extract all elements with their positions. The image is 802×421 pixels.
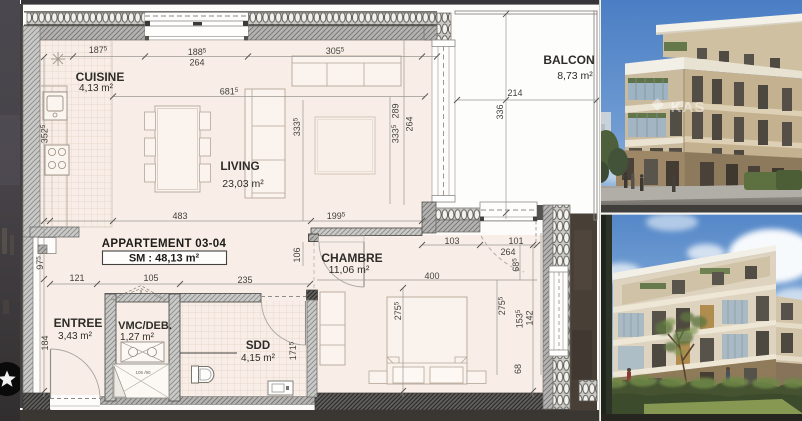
svg-text:184: 184	[40, 335, 50, 350]
svg-text:SM : 48,13 m²: SM : 48,13 m²	[129, 253, 200, 265]
svg-text:121: 121	[69, 273, 84, 283]
svg-text:264: 264	[189, 58, 204, 68]
svg-text:11,06 m²: 11,06 m²	[329, 264, 370, 276]
svg-text:4,13 m²: 4,13 m²	[79, 83, 114, 94]
svg-text:142: 142	[525, 310, 535, 325]
svg-text:23,03 m²: 23,03 m²	[222, 178, 264, 190]
svg-text:ENTREE: ENTREE	[54, 316, 103, 330]
svg-text:289: 289	[391, 103, 401, 118]
svg-text:KAS: KAS	[671, 99, 706, 116]
svg-text:LIVING: LIVING	[220, 159, 259, 173]
svg-text:103: 103	[444, 236, 459, 246]
svg-text:8,73 m²: 8,73 m²	[557, 70, 593, 82]
svg-text:SDD: SDD	[246, 340, 270, 352]
svg-text:BALCON: BALCON	[543, 53, 594, 67]
svg-text:3,43 m²: 3,43 m²	[58, 331, 93, 342]
svg-text:214: 214	[507, 88, 522, 98]
svg-text:APPARTEMENT 03-04: APPARTEMENT 03-04	[102, 238, 227, 250]
svg-text:106: 106	[292, 247, 302, 262]
svg-text:1,27 m²: 1,27 m²	[120, 332, 155, 343]
svg-text:VMC/DEB.: VMC/DEB.	[118, 320, 172, 332]
svg-text:264: 264	[500, 247, 515, 257]
svg-text:264: 264	[405, 116, 415, 131]
svg-text:105: 105	[143, 273, 158, 283]
svg-text:235: 235	[237, 275, 252, 285]
svg-text:CUISINE: CUISINE	[76, 70, 125, 84]
svg-text:483: 483	[172, 211, 187, 221]
svg-text:4,15 m²: 4,15 m²	[241, 353, 276, 364]
svg-text:68: 68	[513, 364, 523, 374]
svg-text:CHAMBRE: CHAMBRE	[321, 251, 382, 265]
svg-text:336: 336	[495, 104, 505, 119]
svg-text:400: 400	[424, 271, 439, 281]
svg-text:105 /90: 105 /90	[135, 370, 151, 375]
svg-text:101: 101	[508, 236, 523, 246]
